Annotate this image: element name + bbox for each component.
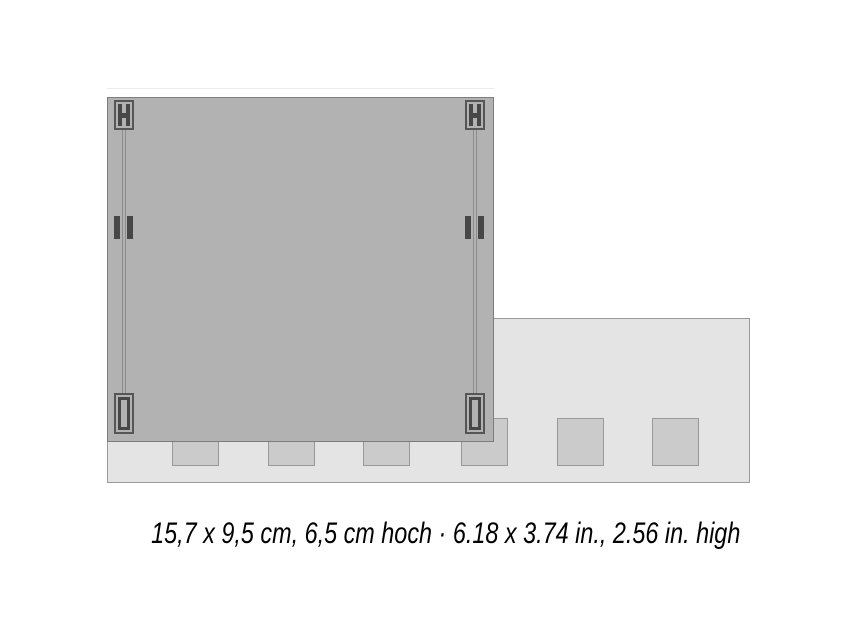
- latch-ring-icon: [118, 397, 130, 430]
- right-fastener-column: [465, 98, 485, 441]
- top-latch-icon: [465, 100, 485, 130]
- top-latch-icon: [114, 100, 134, 130]
- product-dimension-diagram: 15,7 x 9,5 cm, 6,5 cm hoch · 6.18 x 3.74…: [0, 0, 850, 637]
- connector-tab: [557, 418, 604, 466]
- left-fastener-column: [114, 98, 134, 441]
- fold-line: [473, 130, 477, 393]
- faint-edge-line: [107, 88, 494, 89]
- latch-ring-icon: [469, 397, 481, 430]
- latch-crossbar-icon: [469, 113, 481, 118]
- clip-bar-icon: [478, 216, 484, 239]
- connector-tab: [652, 418, 699, 466]
- base-plate: [107, 97, 494, 442]
- clip-bar-icon: [114, 216, 120, 239]
- clip-bar-icon: [127, 216, 133, 239]
- bottom-latch-icon: [465, 393, 485, 434]
- latch-crossbar-icon: [118, 113, 130, 118]
- clip-bar-icon: [465, 216, 471, 239]
- bottom-latch-icon: [114, 393, 134, 434]
- dimensions-caption: 15,7 x 9,5 cm, 6,5 cm hoch · 6.18 x 3.74…: [0, 517, 850, 552]
- dimensions-caption-text: 15,7 x 9,5 cm, 6,5 cm hoch · 6.18 x 3.74…: [151, 517, 740, 552]
- fold-line: [122, 130, 126, 393]
